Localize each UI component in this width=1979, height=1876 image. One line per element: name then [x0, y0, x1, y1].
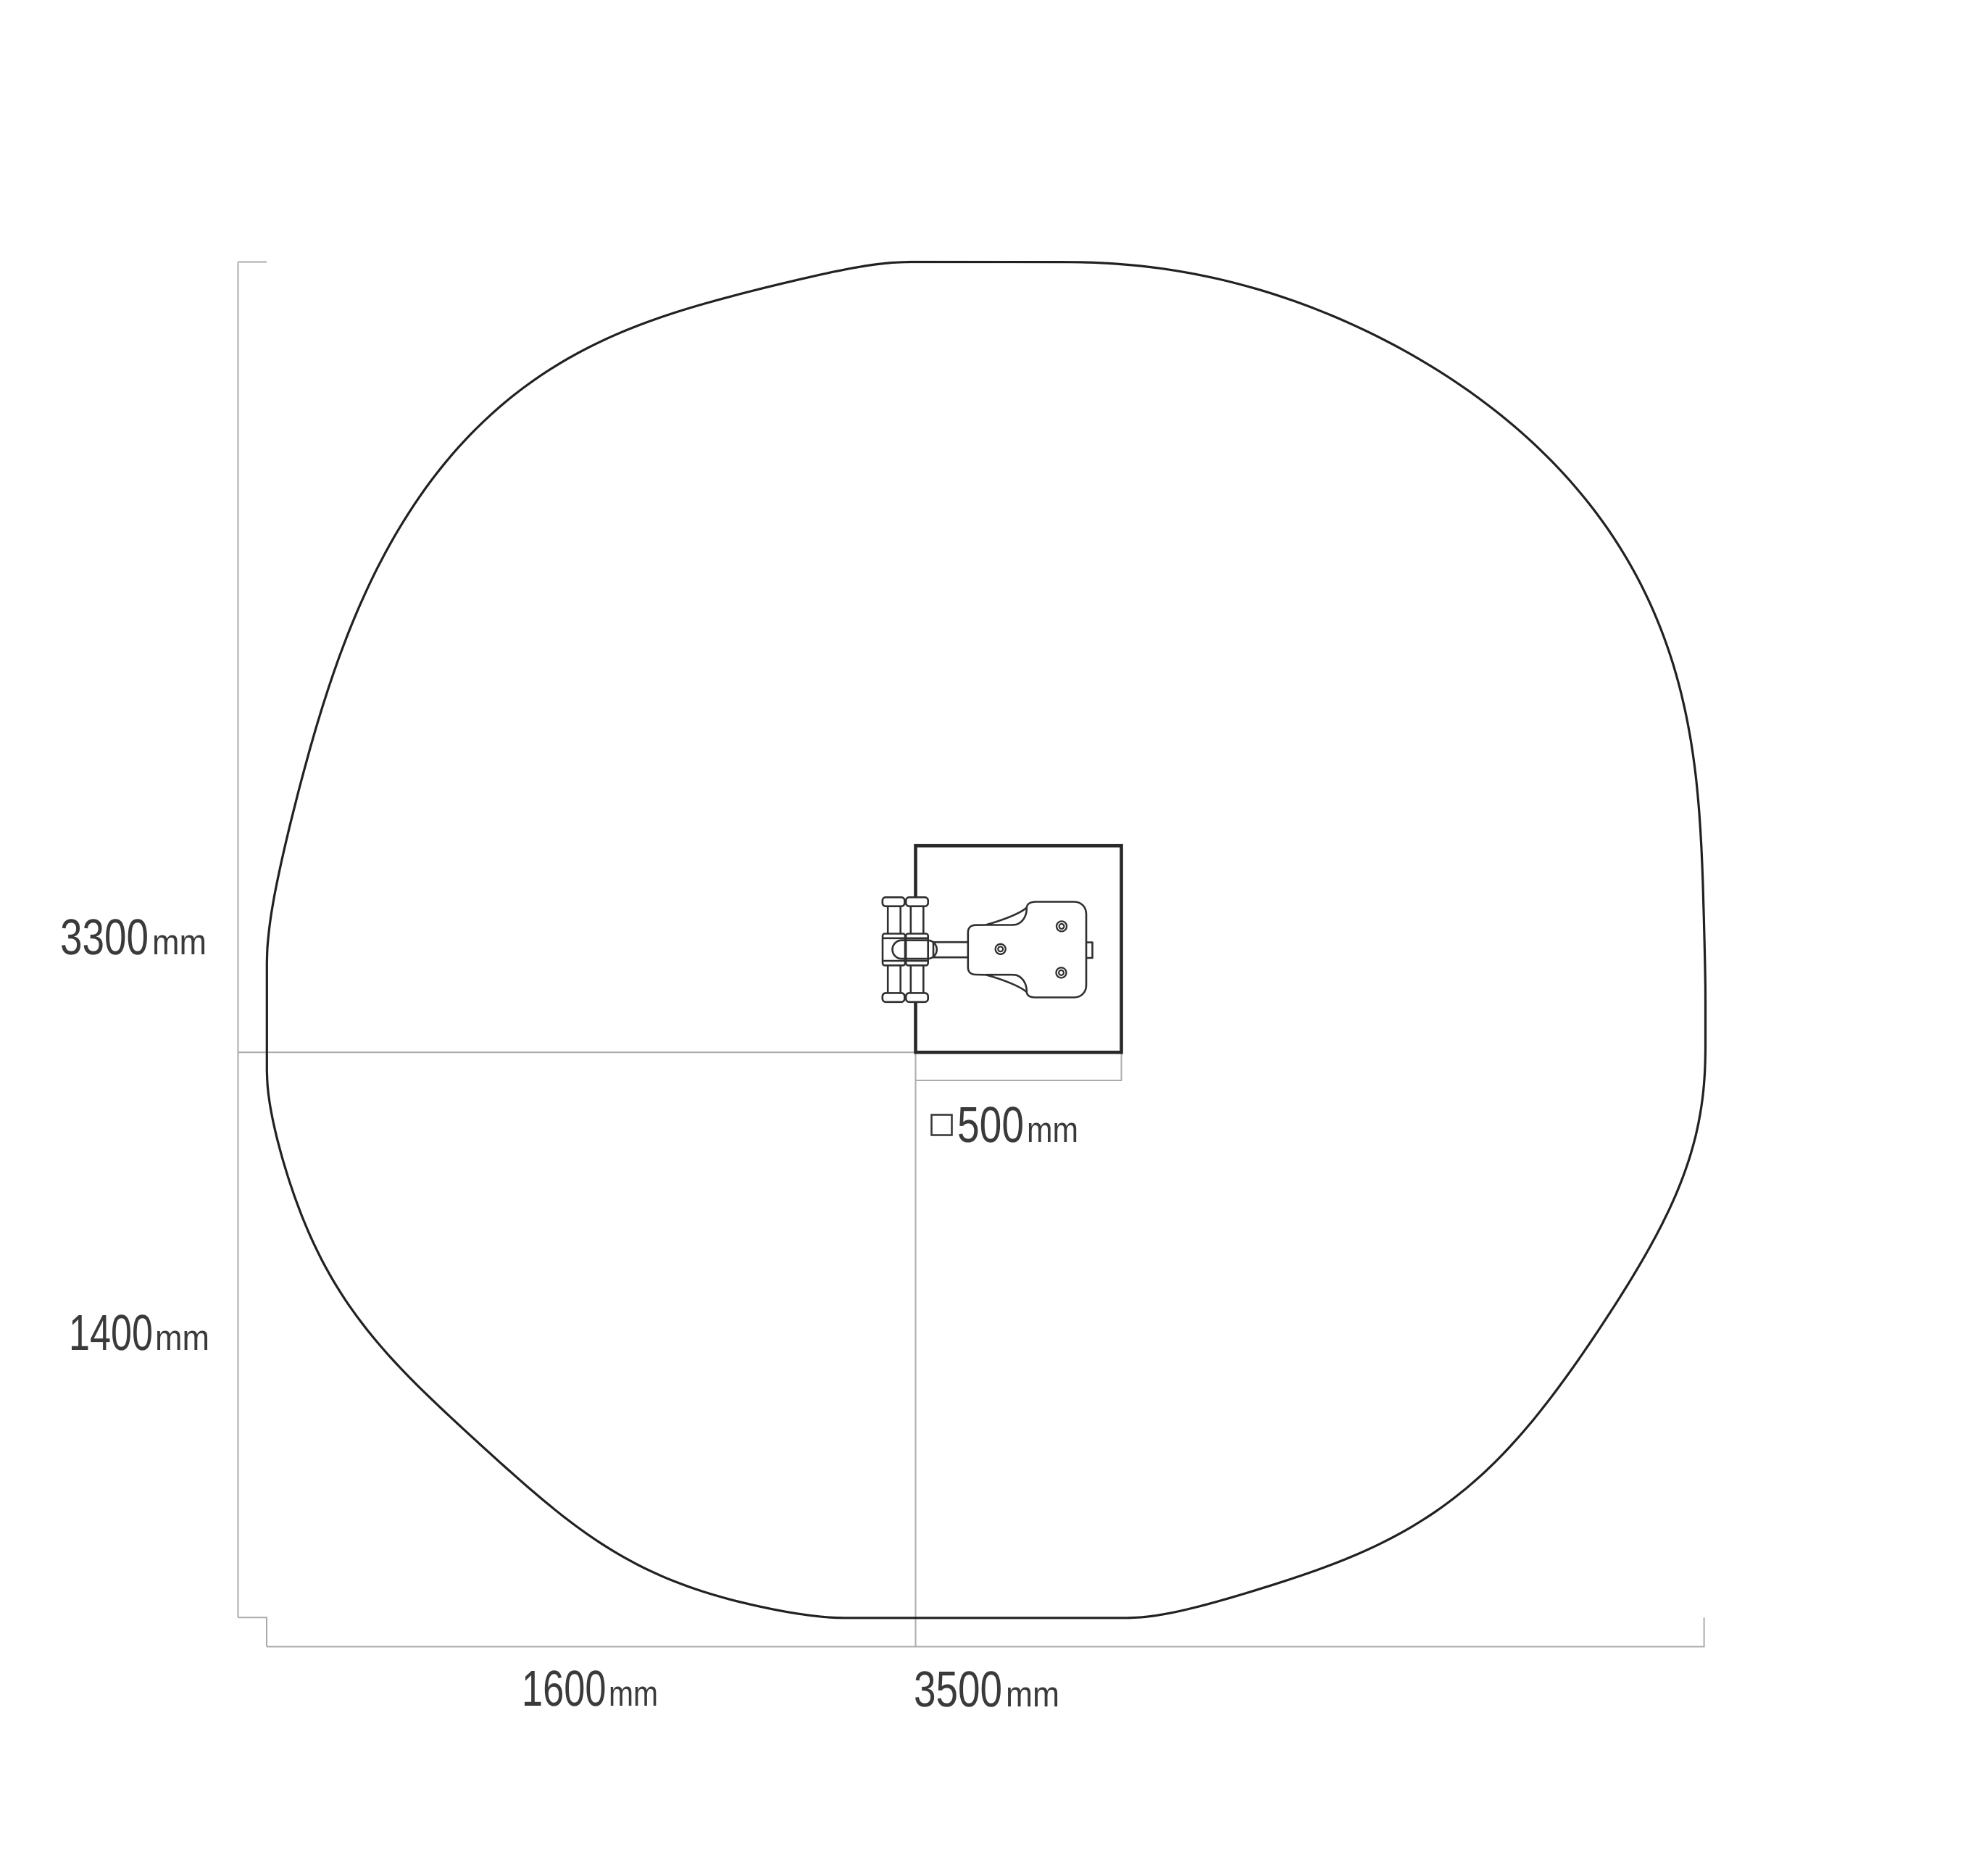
- svg-text:mm: mm: [155, 1318, 209, 1358]
- svg-text:mm: mm: [1006, 1675, 1059, 1714]
- svg-text:mm: mm: [152, 922, 207, 962]
- svg-text:1600: 1600: [522, 1660, 606, 1717]
- svg-text:500: 500: [957, 1096, 1024, 1153]
- svg-text:mm: mm: [609, 1674, 658, 1714]
- svg-text:3300: 3300: [60, 909, 149, 965]
- svg-text:3500: 3500: [914, 1661, 1002, 1717]
- svg-text:1400: 1400: [69, 1304, 153, 1361]
- svg-text:mm: mm: [1027, 1110, 1078, 1150]
